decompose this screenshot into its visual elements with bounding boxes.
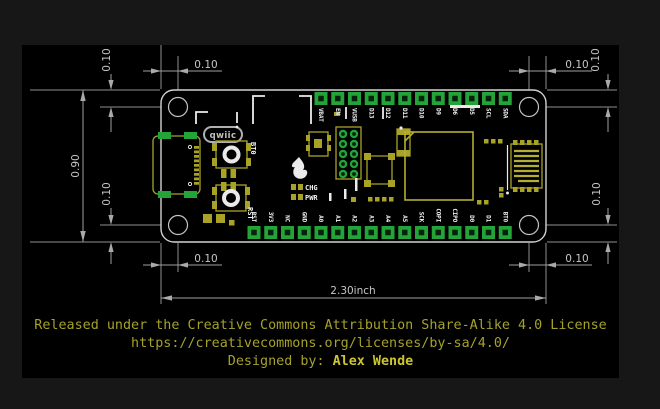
dim-label: 0.10 — [590, 48, 602, 71]
pin-hole — [452, 230, 458, 236]
pin-label: CIPO — [451, 208, 458, 222]
pin-hole — [486, 230, 492, 236]
pin-label: SCL — [485, 108, 492, 119]
pin-label: 3V3 — [267, 212, 274, 223]
dim-label: 0.10 — [565, 59, 588, 71]
pin-hole — [285, 230, 291, 236]
mechanical-drawing: 0.90 0.10 0.10 0.10 0.10 0.10 0.10 — [0, 0, 660, 409]
pin-hole — [469, 230, 475, 236]
pin-hole — [335, 96, 341, 102]
pin-label: RST — [250, 212, 257, 223]
pin-hole — [419, 230, 425, 236]
pin1-marker — [399, 126, 402, 129]
pin-hole — [452, 96, 458, 102]
pin-label: D11 — [401, 108, 408, 119]
pin-label: NC — [284, 215, 291, 222]
pin-hole — [318, 96, 324, 102]
pin-hole — [268, 230, 274, 236]
pin-hole — [369, 230, 375, 236]
qwiic-label: qwiic — [210, 131, 237, 141]
pin-hole — [251, 230, 257, 236]
pin-label: BT0 — [501, 212, 508, 223]
pin-label: GND — [300, 212, 307, 223]
chg-led-label: CHG — [305, 184, 318, 192]
dim-label: 0.10 — [194, 59, 217, 71]
dim-label: 0.10 — [101, 48, 113, 71]
dim-label: 0.10 — [194, 253, 217, 265]
pin-hole — [352, 230, 358, 236]
pin-hole — [402, 96, 408, 102]
pin-label: COPI — [434, 208, 441, 222]
pin-hole — [385, 230, 391, 236]
pin-hole — [302, 230, 308, 236]
pin-label: A4 — [384, 215, 391, 222]
pin-label: A1 — [334, 215, 341, 222]
pin-label: A0 — [317, 215, 324, 222]
pin-label: D13 — [367, 108, 374, 119]
pin-hole — [369, 96, 375, 102]
pin-label: A5 — [401, 215, 408, 222]
dim-label: 0.10 — [565, 253, 588, 265]
dim-height-label: 0.90 — [70, 154, 82, 177]
pin-label: SDA — [501, 108, 508, 119]
pin-hole — [486, 96, 492, 102]
pin-hole — [385, 96, 391, 102]
pin-label: D12 — [384, 108, 391, 119]
pin-label: D0 — [468, 215, 475, 222]
pin-hole — [318, 230, 324, 236]
dim-label: 0.10 — [591, 182, 603, 205]
pin-label: VUSB — [351, 108, 358, 122]
pin-label: D1 — [485, 215, 492, 222]
pin-hole — [335, 230, 341, 236]
pin-hole — [469, 96, 475, 102]
pin-hole — [436, 96, 442, 102]
pin-label: SCK — [418, 212, 425, 223]
pin-label: D9 — [434, 108, 441, 115]
pin-label: D6 — [451, 108, 458, 115]
pcb-dimension-drawing: { "dimensions": { "hole_offset": "0.10",… — [0, 0, 660, 409]
pin-label: VBAT — [317, 108, 324, 122]
pin-hole — [503, 230, 509, 236]
dim-width-label: 2.30inch — [330, 285, 375, 297]
pin-hole — [402, 230, 408, 236]
pin-label: D10 — [418, 108, 425, 119]
pwr-led-label: PWR — [305, 194, 318, 202]
pin-hole — [352, 96, 358, 102]
pin-hole — [503, 96, 509, 102]
pin-label: A3 — [367, 215, 374, 222]
pin-hole — [436, 230, 442, 236]
pin-label: EN — [334, 108, 341, 115]
dim-label: 0.10 — [101, 182, 113, 205]
boot-button-label: BT0 — [249, 142, 257, 155]
pin-label: A2 — [351, 215, 358, 222]
pin-label: D5 — [468, 108, 475, 115]
pin-hole — [419, 96, 425, 102]
